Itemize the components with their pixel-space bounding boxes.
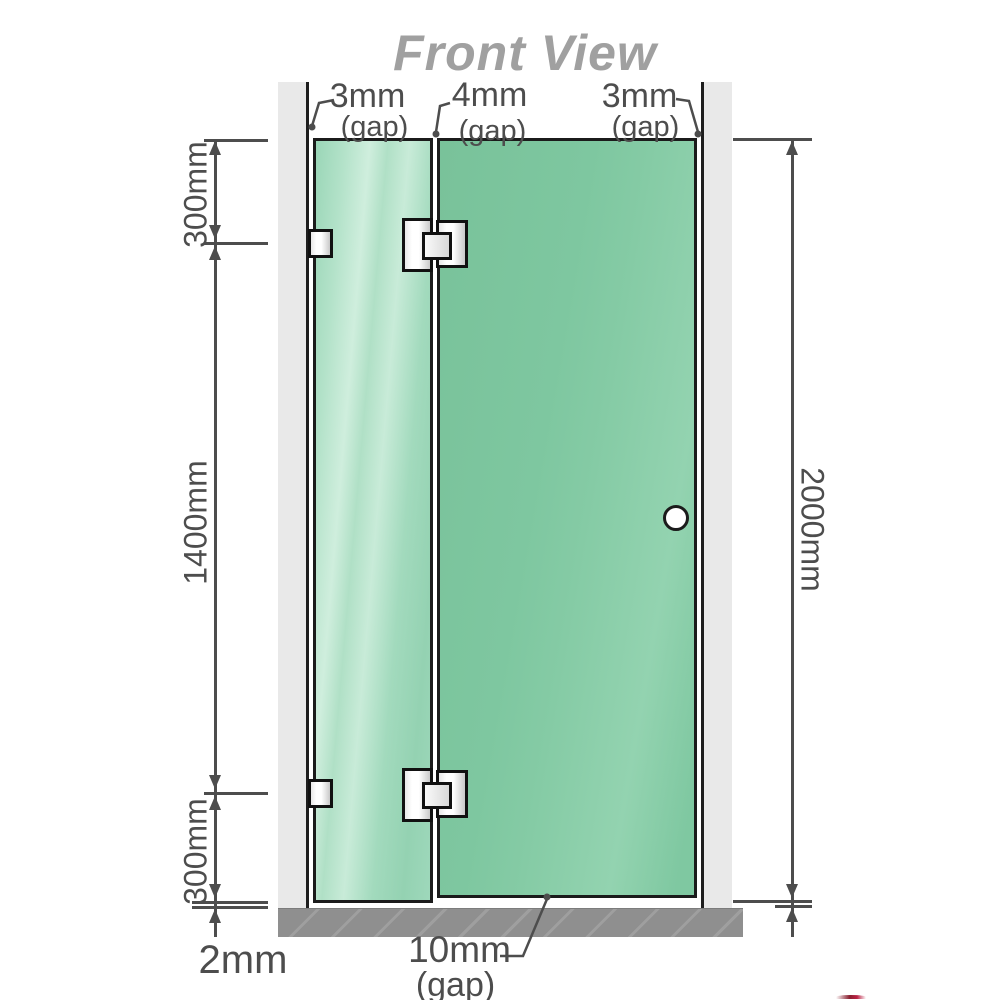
gap-bottom-value: 10mm	[392, 931, 527, 968]
gap-top-middle-suffix: (gap)	[428, 117, 557, 146]
gap-top-right-value: 3mm	[572, 79, 707, 113]
wall-bracket-top	[308, 229, 333, 258]
diagram-title: Front View	[25, 24, 1000, 82]
dim-label-2000: 2000mm	[794, 455, 831, 605]
arrow-down-2000	[786, 884, 798, 898]
gap-label-bottom: 10mm (gap)	[392, 931, 527, 1000]
tick-right-bottom	[733, 900, 812, 903]
dim-label-1400: 1400mm	[178, 453, 215, 593]
tick-right-top	[733, 138, 812, 141]
left-wall	[278, 82, 309, 908]
arrow-up-gap-right	[786, 908, 798, 922]
gap-top-left-value: 3mm	[300, 79, 435, 113]
right-wall	[701, 82, 732, 908]
hinge-bottom-center-tab	[422, 782, 452, 809]
dim-label-300-bottom: 300mm	[178, 792, 215, 912]
gap-top-middle-value: 4mm	[422, 78, 557, 112]
arrow-up-2000	[786, 141, 798, 155]
gap-label-top-left: 3mm (gap)	[300, 79, 435, 142]
gap-bottom-suffix: (gap)	[384, 968, 527, 1000]
hinge-top-center-tab	[422, 232, 452, 260]
watermark-fragment	[836, 995, 866, 999]
wall-bracket-bottom	[308, 779, 333, 808]
gap-top-right-suffix: (gap)	[584, 113, 707, 142]
gap-label-top-middle: 4mm (gap)	[422, 78, 557, 146]
gap-label-top-right: 3mm (gap)	[572, 79, 707, 142]
arrow-down-1400	[209, 775, 221, 789]
gap-top-left-suffix: (gap)	[314, 113, 435, 142]
door-glass-panel	[437, 138, 697, 898]
door-handle-knob	[663, 505, 689, 531]
dim-label-2mm: 2mm	[190, 938, 296, 983]
dim-label-300-top: 300mm	[178, 135, 215, 255]
front-view-diagram: Front View 300mm 1400mm 300mm 2mm 2000mm…	[0, 0, 1000, 1000]
